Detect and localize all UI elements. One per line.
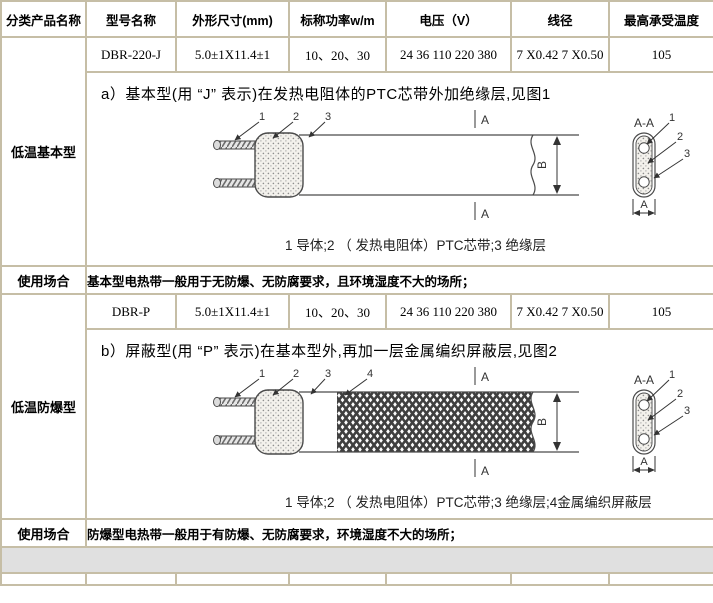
wire-value: 7 X0.42 7 X0.50: [511, 37, 609, 72]
section-a-title: a）基本型(用 “J” 表示)在发热电阻体的PTC芯带外加绝缘层,见图1: [87, 73, 713, 107]
svg-text:3: 3: [325, 111, 331, 123]
model-value: DBR-220-J: [86, 37, 176, 72]
svg-text:4: 4: [367, 368, 373, 380]
ptc-core-block: [255, 390, 303, 454]
usage-row-basic: 使用场合 基本型电热带一般用于无防爆、无防腐要求，且环境湿度不大的场所；: [1, 266, 713, 294]
cross-section-aa: A-A 1 2 3 A: [633, 369, 690, 473]
svg-text:B: B: [535, 418, 549, 426]
size-value: 5.0±1X11.4±1: [176, 37, 289, 72]
cutoff-bottom-row: [1, 573, 713, 585]
model-value: DBR-P: [86, 294, 176, 329]
svg-text:A: A: [640, 199, 648, 211]
category-explosionproof-cell: 低温防爆型: [1, 294, 86, 519]
stub-cell: [511, 573, 609, 585]
stub-cell: [289, 573, 386, 585]
metal-braid-shield: [337, 392, 537, 452]
size-value: 5.0±1X11.4±1: [176, 294, 289, 329]
figure-1-caption: 1 导体;2 （ 发热电阻体）PTC芯带;3 绝缘层: [87, 233, 713, 260]
usage-row-explosionproof: 使用场合 防爆型电热带一般用于有防爆、无防腐要求，环境湿度不大的场所；: [1, 519, 713, 547]
conductor-wires: [214, 397, 262, 444]
header-cell-voltage: 电压（V）: [386, 1, 511, 37]
ptc-core-block: [255, 133, 303, 197]
header-cell-wire: 线径: [511, 1, 609, 37]
wire-value: 7 X0.42 7 X0.50: [511, 294, 609, 329]
power-value: 10、20、30: [289, 37, 386, 72]
product-spec-page: 分类产品名称 型号名称 外形尺寸(mm) 标称功率w/m 电压（V） 线径 最高…: [0, 0, 713, 603]
figure-1-basic-cable-diagram: A A B 1 2 3: [87, 107, 713, 233]
gray-spacer-cell: [1, 547, 713, 573]
svg-text:A: A: [481, 370, 489, 384]
temp-value: 105: [609, 37, 713, 72]
header-cell-size: 外形尺寸(mm): [176, 1, 289, 37]
figure-2-shielded-cable-diagram: A A B 1 2 3: [87, 364, 713, 490]
dimension-b: B: [535, 136, 561, 194]
section-b-cell: b）屏蔽型(用 “P” 表示)在基本型外,再加一层金属编织屏蔽层,见图2: [86, 329, 713, 519]
svg-text:2: 2: [293, 111, 299, 123]
usage-basic-text: 基本型电热带一般用于无防爆、无防腐要求，且环境湿度不大的场所；: [86, 266, 713, 294]
svg-text:A-A: A-A: [634, 373, 654, 387]
svg-text:B: B: [535, 161, 549, 169]
svg-text:1: 1: [669, 112, 675, 124]
conductor-wires: [214, 140, 262, 187]
header-cell-temp: 最高承受温度: [609, 1, 713, 37]
power-value: 10、20、30: [289, 294, 386, 329]
svg-text:A: A: [640, 456, 648, 468]
stub-cell: [176, 573, 289, 585]
svg-text:2: 2: [677, 388, 683, 400]
svg-text:A: A: [481, 113, 489, 127]
section-b-title: b）屏蔽型(用 “P” 表示)在基本型外,再加一层金属编织屏蔽层,见图2: [87, 330, 713, 364]
svg-text:3: 3: [684, 148, 690, 160]
stub-cell: [609, 573, 713, 585]
svg-text:A: A: [481, 207, 489, 221]
header-cell-category: 分类产品名称: [1, 1, 86, 37]
stub-cell: [386, 573, 511, 585]
header-row: 分类产品名称 型号名称 外形尺寸(mm) 标称功率w/m 电压（V） 线径 最高…: [1, 1, 713, 37]
section-a-row: a）基本型(用 “J” 表示)在发热电阻体的PTC芯带外加绝缘层,见图1: [1, 72, 713, 266]
spec-table: 分类产品名称 型号名称 外形尺寸(mm) 标称功率w/m 电压（V） 线径 最高…: [0, 0, 713, 586]
voltage-value: 24 36 110 220 380: [386, 37, 511, 72]
header-cell-power: 标称功率w/m: [289, 1, 386, 37]
svg-text:A: A: [481, 464, 489, 478]
section-b-row: b）屏蔽型(用 “P” 表示)在基本型外,再加一层金属编织屏蔽层,见图2: [1, 329, 713, 519]
usage-label-cell: 使用场合: [1, 519, 86, 547]
svg-text:A-A: A-A: [634, 116, 654, 130]
category-basic-cell: 低温基本型: [1, 37, 86, 266]
cross-section-aa: A-A 1 2 3 A: [633, 112, 690, 216]
svg-text:2: 2: [677, 131, 683, 143]
temp-value: 105: [609, 294, 713, 329]
gray-spacer-row: [1, 547, 713, 573]
header-cell-model: 型号名称: [86, 1, 176, 37]
svg-text:1: 1: [669, 369, 675, 381]
svg-text:3: 3: [325, 368, 331, 380]
section-cut-markers: A A: [475, 110, 489, 221]
table-row-dbr-p: 低温防爆型 DBR-P 5.0±1X11.4±1 10、20、30 24 36 …: [1, 294, 713, 329]
stub-cell: [86, 573, 176, 585]
stub-cell: [1, 573, 86, 585]
voltage-value: 24 36 110 220 380: [386, 294, 511, 329]
usage-explosionproof-text: 防爆型电热带一般用于有防爆、无防腐要求，环境湿度不大的场所；: [86, 519, 713, 547]
section-a-cell: a）基本型(用 “J” 表示)在发热电阻体的PTC芯带外加绝缘层,见图1: [86, 72, 713, 266]
figure-2-caption: 1 导体;2 （ 发热电阻体）PTC芯带;3 绝缘层;4金属编织屏蔽层: [87, 490, 713, 517]
svg-text:1: 1: [259, 111, 265, 123]
svg-text:3: 3: [684, 405, 690, 417]
usage-label-cell: 使用场合: [1, 266, 86, 294]
dimension-b: B: [535, 393, 561, 451]
svg-text:1: 1: [259, 368, 265, 380]
svg-text:2: 2: [293, 368, 299, 380]
table-row-dbr-220-j: 低温基本型 DBR-220-J 5.0±1X11.4±1 10、20、30 24…: [1, 37, 713, 72]
